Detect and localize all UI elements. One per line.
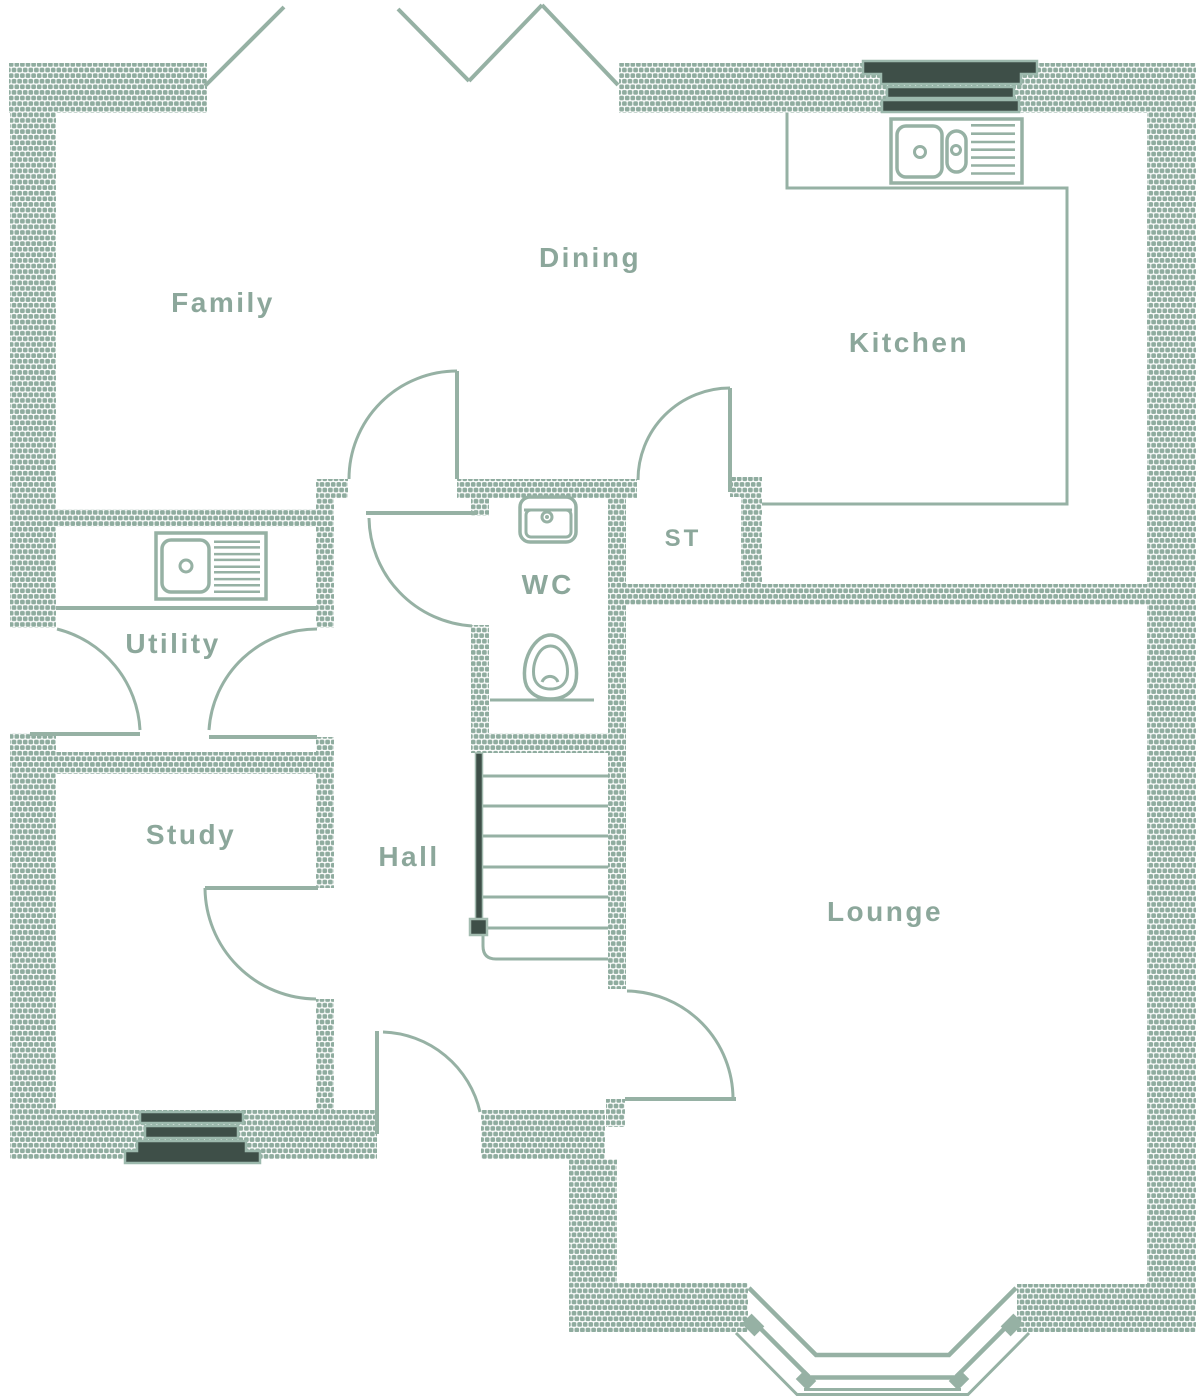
svg-text:Kitchen: Kitchen <box>849 327 969 358</box>
svg-text:WC: WC <box>522 569 575 600</box>
svg-text:Hall: Hall <box>378 841 439 872</box>
svg-text:Study: Study <box>146 819 236 850</box>
svg-text:Dining: Dining <box>539 242 641 273</box>
svg-text:Utility: Utility <box>125 628 220 659</box>
svg-text:ST: ST <box>665 525 702 552</box>
svg-text:Family: Family <box>171 287 275 318</box>
svg-text:Lounge: Lounge <box>827 896 943 927</box>
